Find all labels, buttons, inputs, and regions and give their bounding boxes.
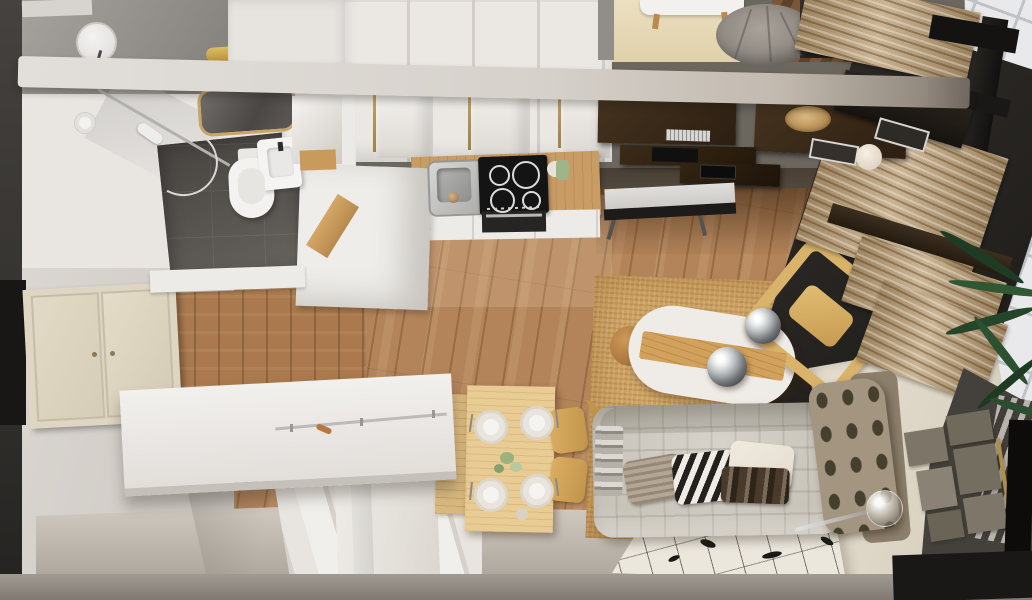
vanity-faucet bbox=[278, 142, 284, 151]
tufted-sofa bbox=[592, 402, 842, 538]
rail-post bbox=[290, 424, 293, 432]
keyboard bbox=[666, 129, 710, 142]
black-corner-bar bbox=[892, 551, 1032, 600]
striped-throw bbox=[594, 426, 623, 496]
floor-lamp-glass-bulb bbox=[866, 490, 903, 527]
loft-divider-wall bbox=[598, 0, 614, 60]
ceiling-cornice bbox=[22, 0, 93, 17]
rail-post bbox=[432, 410, 435, 418]
lower-wall-cut bbox=[0, 574, 1032, 600]
loft-table bbox=[640, 0, 744, 15]
wardrobe-knob bbox=[92, 352, 97, 357]
stone-piece bbox=[953, 443, 1002, 495]
cup bbox=[516, 508, 528, 520]
laptop bbox=[652, 147, 698, 163]
stone-piece bbox=[904, 427, 949, 467]
sink-drain-knob bbox=[448, 192, 459, 203]
stone-piece bbox=[946, 409, 994, 446]
wicker-bowl bbox=[785, 106, 831, 132]
dinner-plate bbox=[474, 410, 508, 444]
dinner-plate bbox=[520, 474, 554, 508]
burner-ring bbox=[489, 165, 510, 186]
brown-striped-pillow bbox=[721, 466, 790, 504]
rail-post bbox=[360, 418, 363, 426]
wardrobe-knob bbox=[110, 351, 115, 356]
green-bottle bbox=[556, 160, 569, 180]
salad-bowl bbox=[510, 462, 522, 472]
landing-platform bbox=[119, 373, 456, 496]
closet-wood-shelf bbox=[300, 149, 337, 170]
chrome-pendant-globe bbox=[707, 347, 747, 387]
sofa-backrest bbox=[600, 404, 832, 434]
stone-piece bbox=[927, 509, 965, 542]
stone-piece bbox=[916, 466, 958, 511]
toilet-paper-roll bbox=[74, 112, 96, 134]
apartment-render bbox=[0, 0, 1032, 600]
stone-piece bbox=[963, 492, 1008, 534]
burner-ring bbox=[512, 161, 540, 189]
white-sphere-lamp bbox=[856, 144, 882, 170]
toilet-seat bbox=[237, 167, 266, 204]
dinner-plate bbox=[520, 406, 554, 440]
salad-bowl bbox=[494, 464, 504, 473]
chrome-pendant-globe bbox=[745, 308, 781, 344]
dinner-plate bbox=[474, 478, 508, 512]
wardrobe-door bbox=[31, 292, 106, 421]
tablet bbox=[700, 164, 736, 179]
